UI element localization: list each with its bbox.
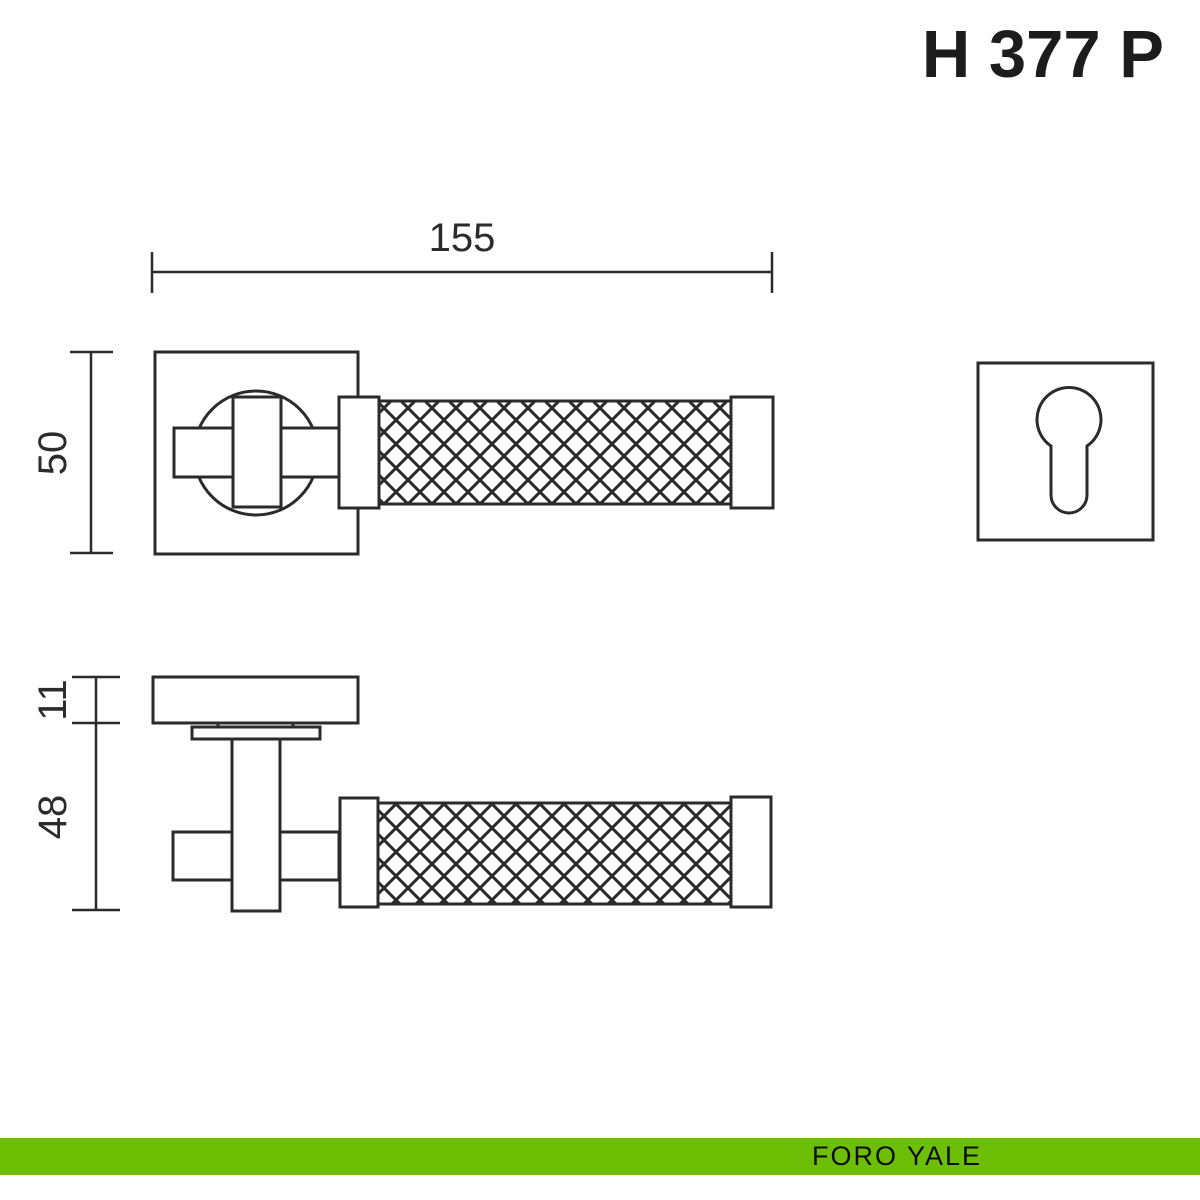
grip-knurl-side — [378, 803, 731, 904]
grip-knurl-front — [379, 401, 731, 504]
technical-drawing: 155 50 11 — [0, 0, 1200, 1200]
handle-side-view — [153, 677, 771, 911]
grip-collar-side — [340, 798, 378, 907]
grip-end-cap-front — [731, 397, 773, 508]
dimension-side-view: 11 48 — [31, 677, 120, 910]
handle-front-view — [155, 352, 773, 554]
dimension-handle-length-value: 155 — [429, 216, 496, 260]
rosette-plate-side — [153, 677, 358, 723]
dimension-rosette-size-value: 50 — [31, 431, 75, 476]
grip-collar-front — [339, 397, 379, 508]
grip-end-cap-side — [731, 797, 771, 907]
rosette-flange-side — [192, 727, 320, 739]
dimension-handle-length: 155 — [152, 216, 772, 293]
keyhole-escutcheon — [978, 363, 1153, 540]
spindle-block-front — [233, 397, 281, 507]
catalog-page: H 377 P 155 50 — [0, 0, 1200, 1200]
dimension-handle-depth-value: 48 — [31, 795, 75, 840]
footer-label: FORO YALE — [812, 1138, 982, 1175]
dimension-rosette-size: 50 — [31, 352, 113, 553]
footer-bar: FORO YALE — [0, 1138, 1200, 1175]
dimension-rosette-thickness-value: 11 — [31, 679, 75, 721]
neck-stem-side — [232, 739, 280, 911]
